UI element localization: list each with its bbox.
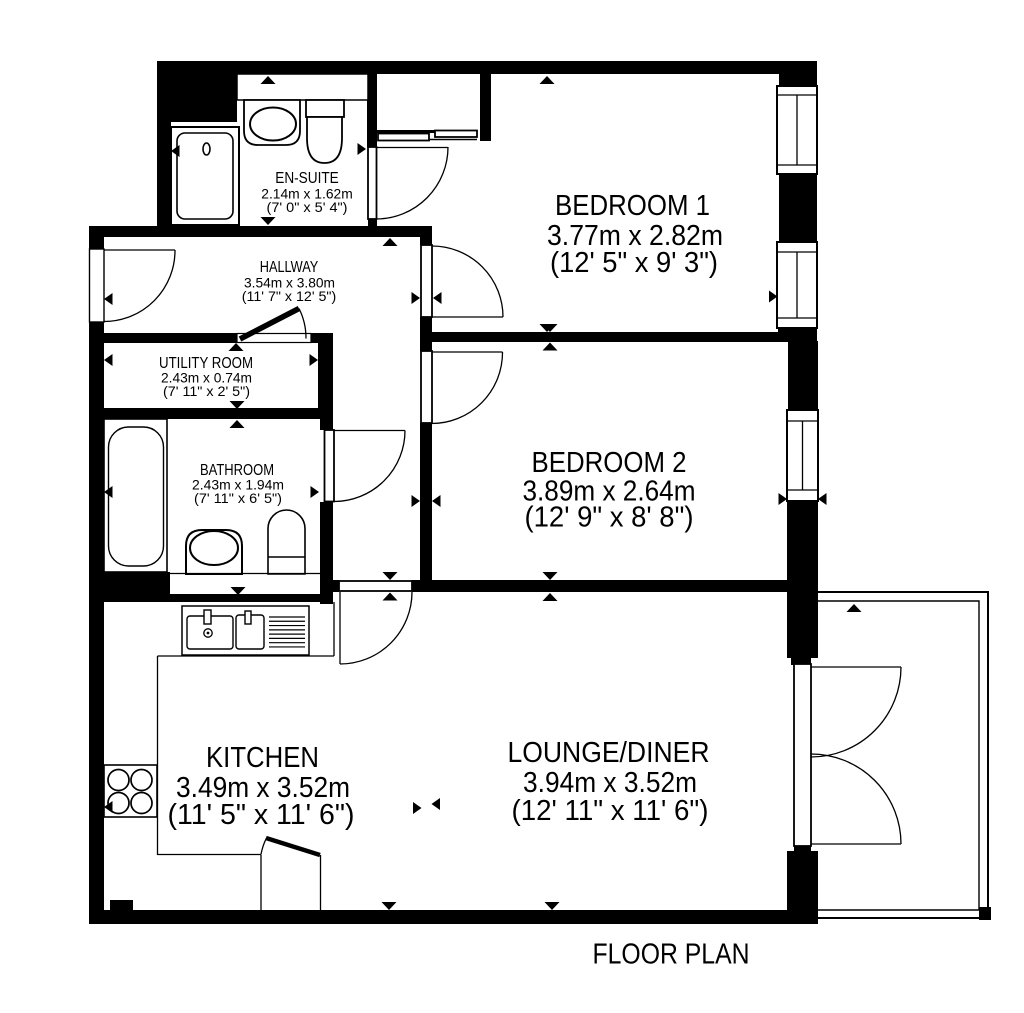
svg-text:(7' 0" x 5' 4"): (7' 0" x 5' 4") <box>267 199 348 215</box>
svg-text:BEDROOM 1: BEDROOM 1 <box>555 190 710 222</box>
svg-text:HALLWAY: HALLWAY <box>260 259 319 276</box>
svg-text:(11' 5" x 11' 6"): (11' 5" x 11' 6") <box>168 799 355 831</box>
svg-text:(11' 7" x 12' 5"): (11' 7" x 12' 5") <box>242 288 337 304</box>
svg-text:(12' 9" x 8' 8"): (12' 9" x 8' 8") <box>525 502 694 534</box>
svg-text:(7' 11" x 2' 5"): (7' 11" x 2' 5") <box>163 383 250 399</box>
svg-text:KITCHEN: KITCHEN <box>206 742 319 774</box>
svg-text:(7' 11" x 6' 5"): (7' 11" x 6' 5") <box>194 490 282 506</box>
svg-text:EN-SUITE: EN-SUITE <box>275 170 339 187</box>
svg-text:BEDROOM 2: BEDROOM 2 <box>532 447 687 479</box>
svg-text:LOUNGE/DINER: LOUNGE/DINER <box>508 737 710 769</box>
svg-text:(12' 11" x 11' 6"): (12' 11" x 11' 6") <box>512 795 709 827</box>
svg-text:(12' 5" x 9' 3"): (12' 5" x 9' 3") <box>550 247 718 279</box>
svg-text:FLOOR PLAN: FLOOR PLAN <box>593 939 750 971</box>
